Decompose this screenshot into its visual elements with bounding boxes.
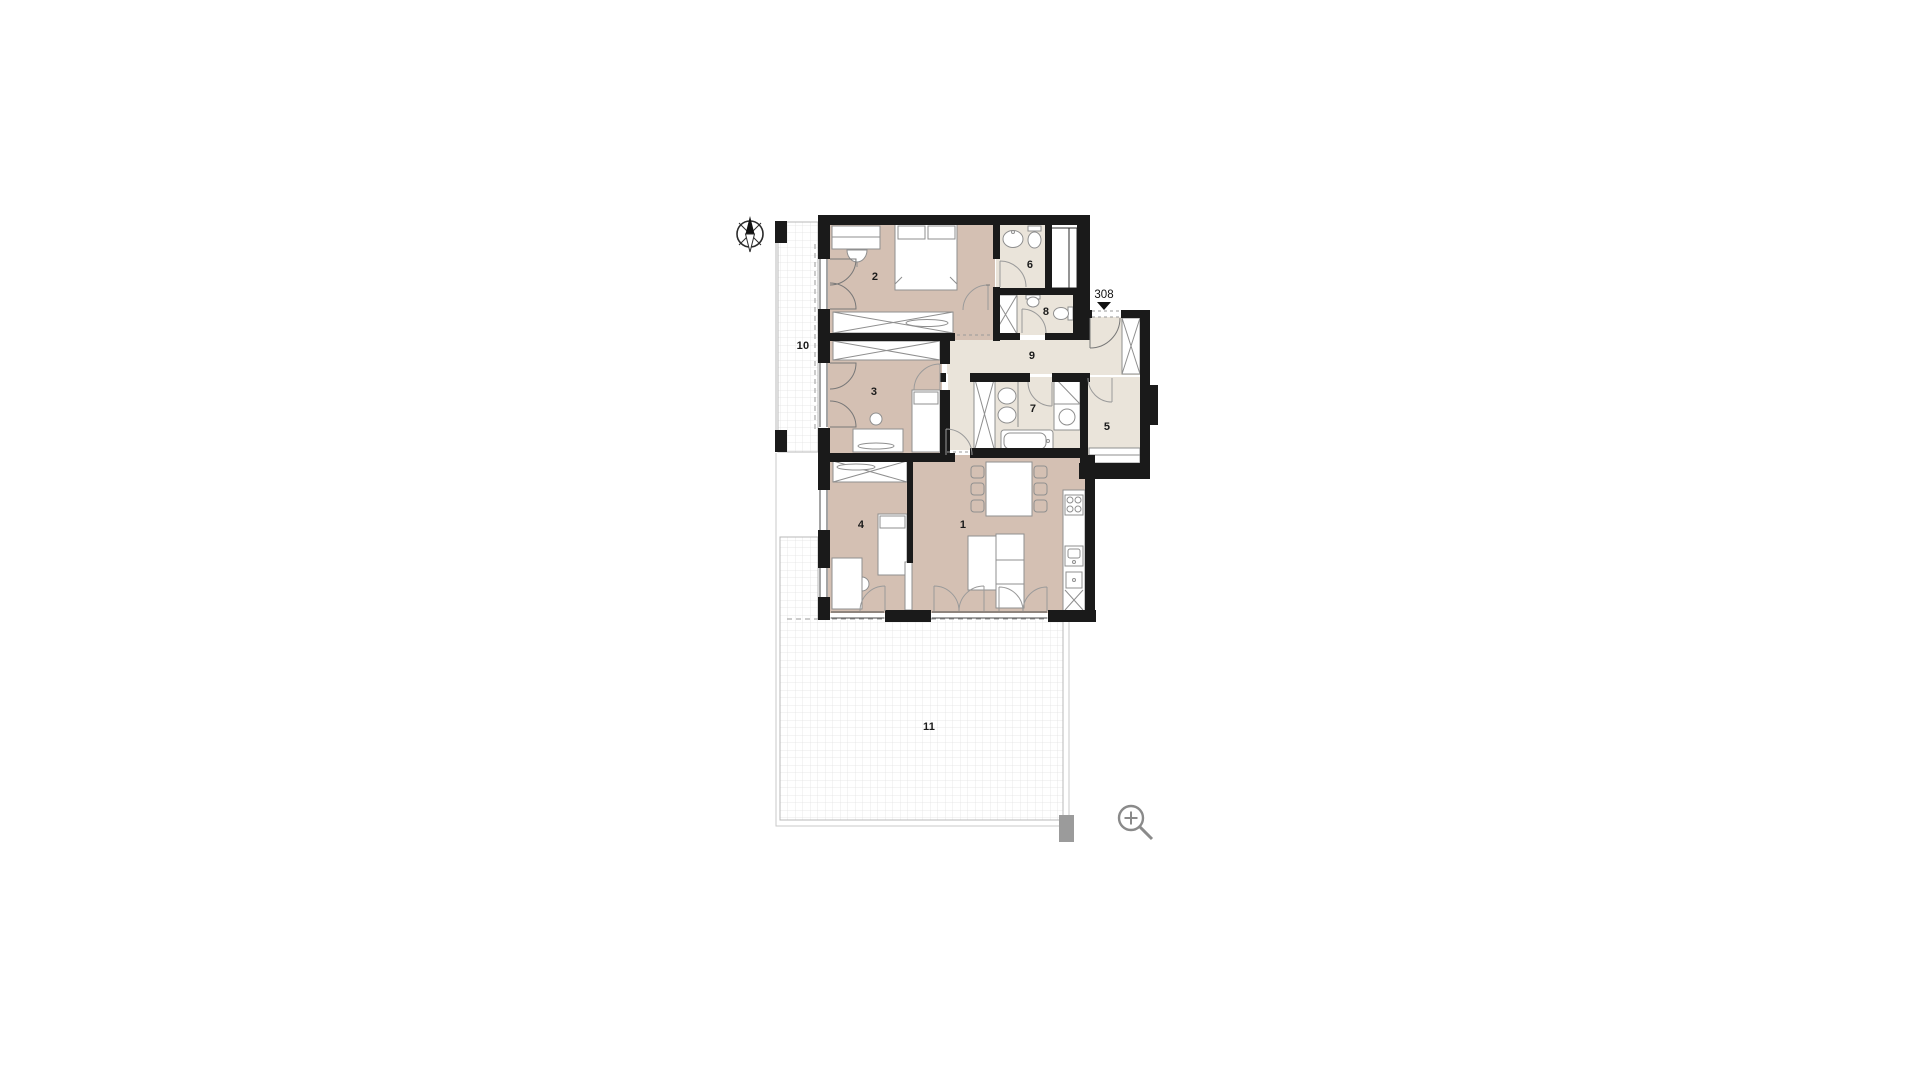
stool-room3 <box>870 413 882 425</box>
passage-floor <box>948 373 975 450</box>
closet-room2 <box>832 226 880 249</box>
unit-number-label: 308 <box>1094 289 1113 301</box>
washing-machine <box>1054 404 1080 430</box>
wardrobe-room4 <box>833 461 907 482</box>
floor-plan-page: 1 2 3 4 5 6 7 8 9 10 11 308 <box>0 0 1920 1080</box>
room-label-9: 9 <box>1029 350 1035 362</box>
balcony-area <box>775 221 818 452</box>
room-label-8: 8 <box>1043 306 1049 318</box>
room-label-11: 11 <box>923 721 935 733</box>
room-label-1: 1 <box>960 519 966 531</box>
terrace-post <box>1059 815 1074 842</box>
shaft <box>1050 228 1077 288</box>
kitchen-counter <box>1063 490 1085 612</box>
bath6-toilet <box>1028 226 1041 248</box>
compass-icon <box>737 216 763 252</box>
wardrobe-room3 <box>833 341 940 360</box>
room-label-5: 5 <box>1104 421 1110 433</box>
room5-counter <box>1089 448 1140 463</box>
wc8-sink <box>1026 295 1040 307</box>
room-label-2: 2 <box>872 271 878 283</box>
zoom-in-icon[interactable] <box>1119 806 1152 839</box>
desk-room3 <box>853 429 903 452</box>
door-leaf-room4-room1 <box>905 562 912 610</box>
wc8-toilet <box>1054 307 1074 320</box>
entry-wardrobe <box>1122 318 1140 374</box>
hallway-9-floor <box>947 340 1090 374</box>
bath6-sink <box>1003 231 1023 248</box>
room-label-6: 6 <box>1027 259 1033 271</box>
room-label-3: 3 <box>871 386 877 398</box>
bath7-wardrobe <box>974 376 995 452</box>
bed-room3 <box>912 390 940 452</box>
floor-plan-drawing <box>0 0 1920 1080</box>
entrance-arrow-icon <box>1097 302 1111 310</box>
room-label-4: 4 <box>858 519 864 531</box>
bed-room2 <box>895 224 957 290</box>
room-label-10: 10 <box>797 340 810 352</box>
dining-table <box>986 462 1032 516</box>
room-label-7: 7 <box>1030 403 1036 415</box>
wardrobe-room2 <box>833 312 953 333</box>
bed-room4 <box>878 514 907 575</box>
